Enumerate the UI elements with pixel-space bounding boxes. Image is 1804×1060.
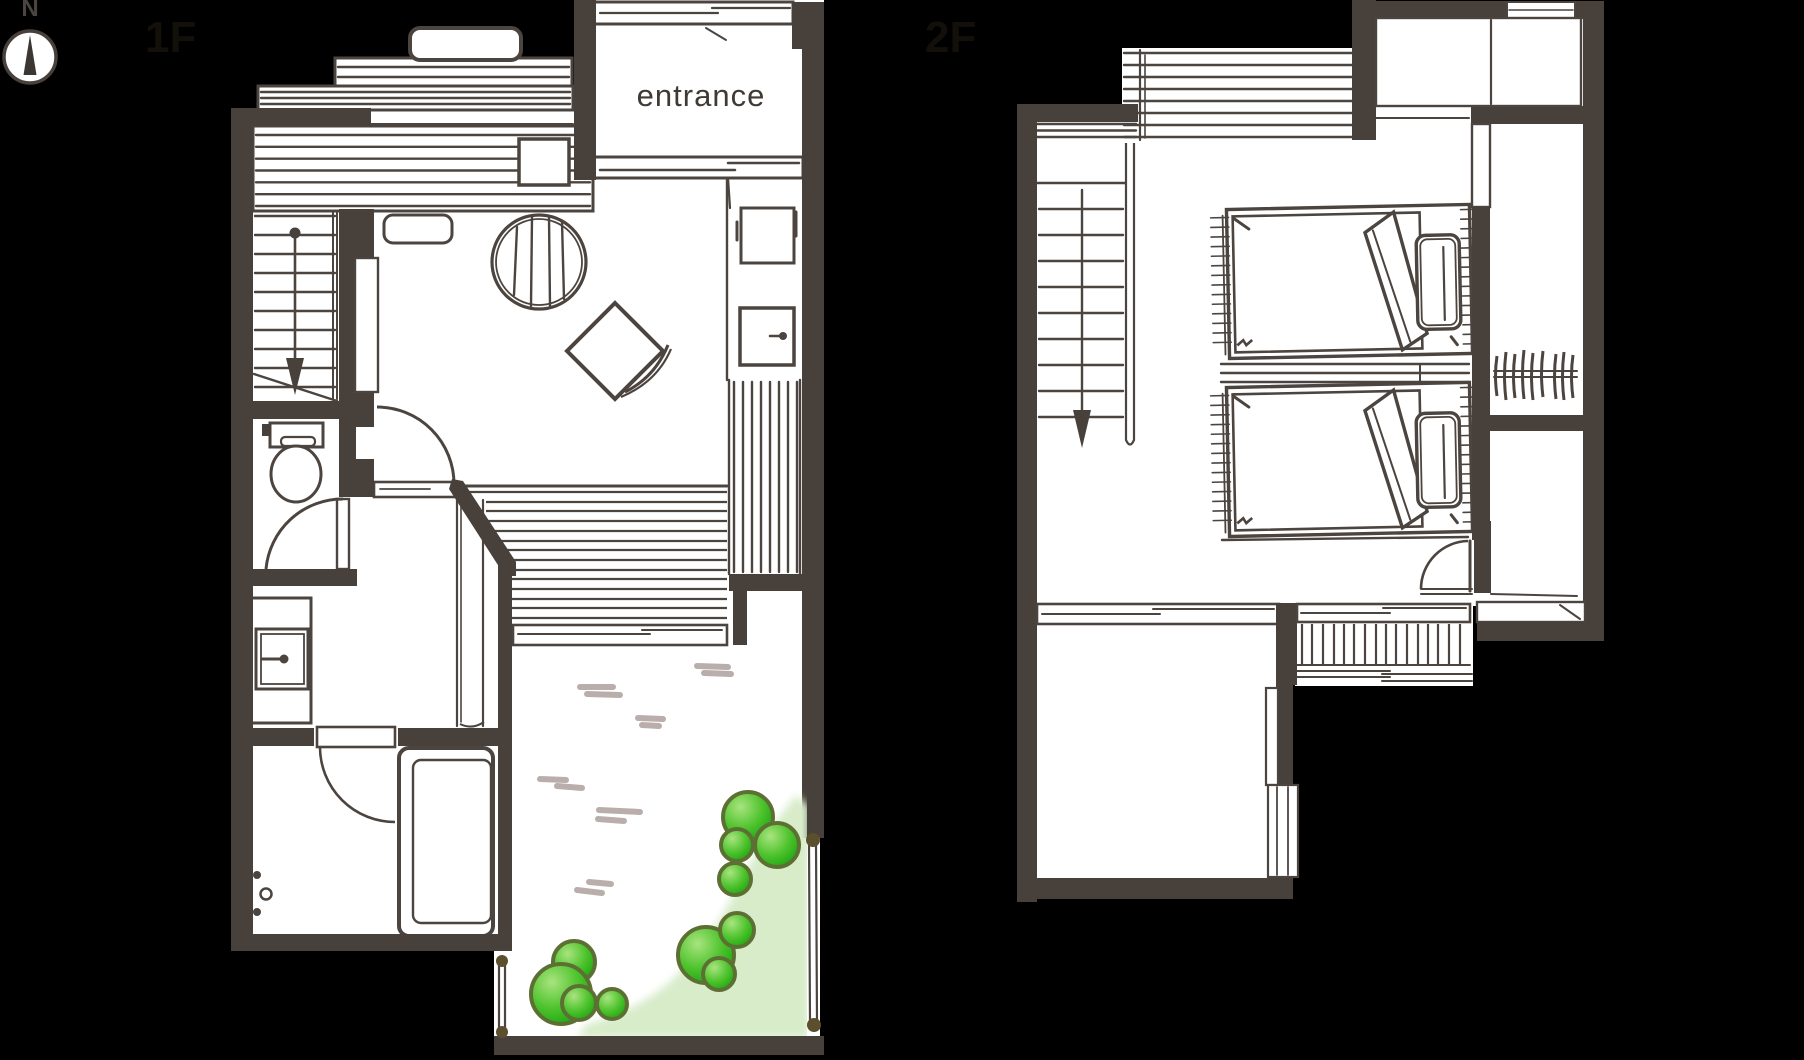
svg-text:1F: 1F (145, 13, 196, 62)
svg-text:N: N (21, 0, 38, 22)
svg-text:entrance: entrance (637, 78, 766, 113)
svg-text:2F: 2F (925, 13, 976, 62)
